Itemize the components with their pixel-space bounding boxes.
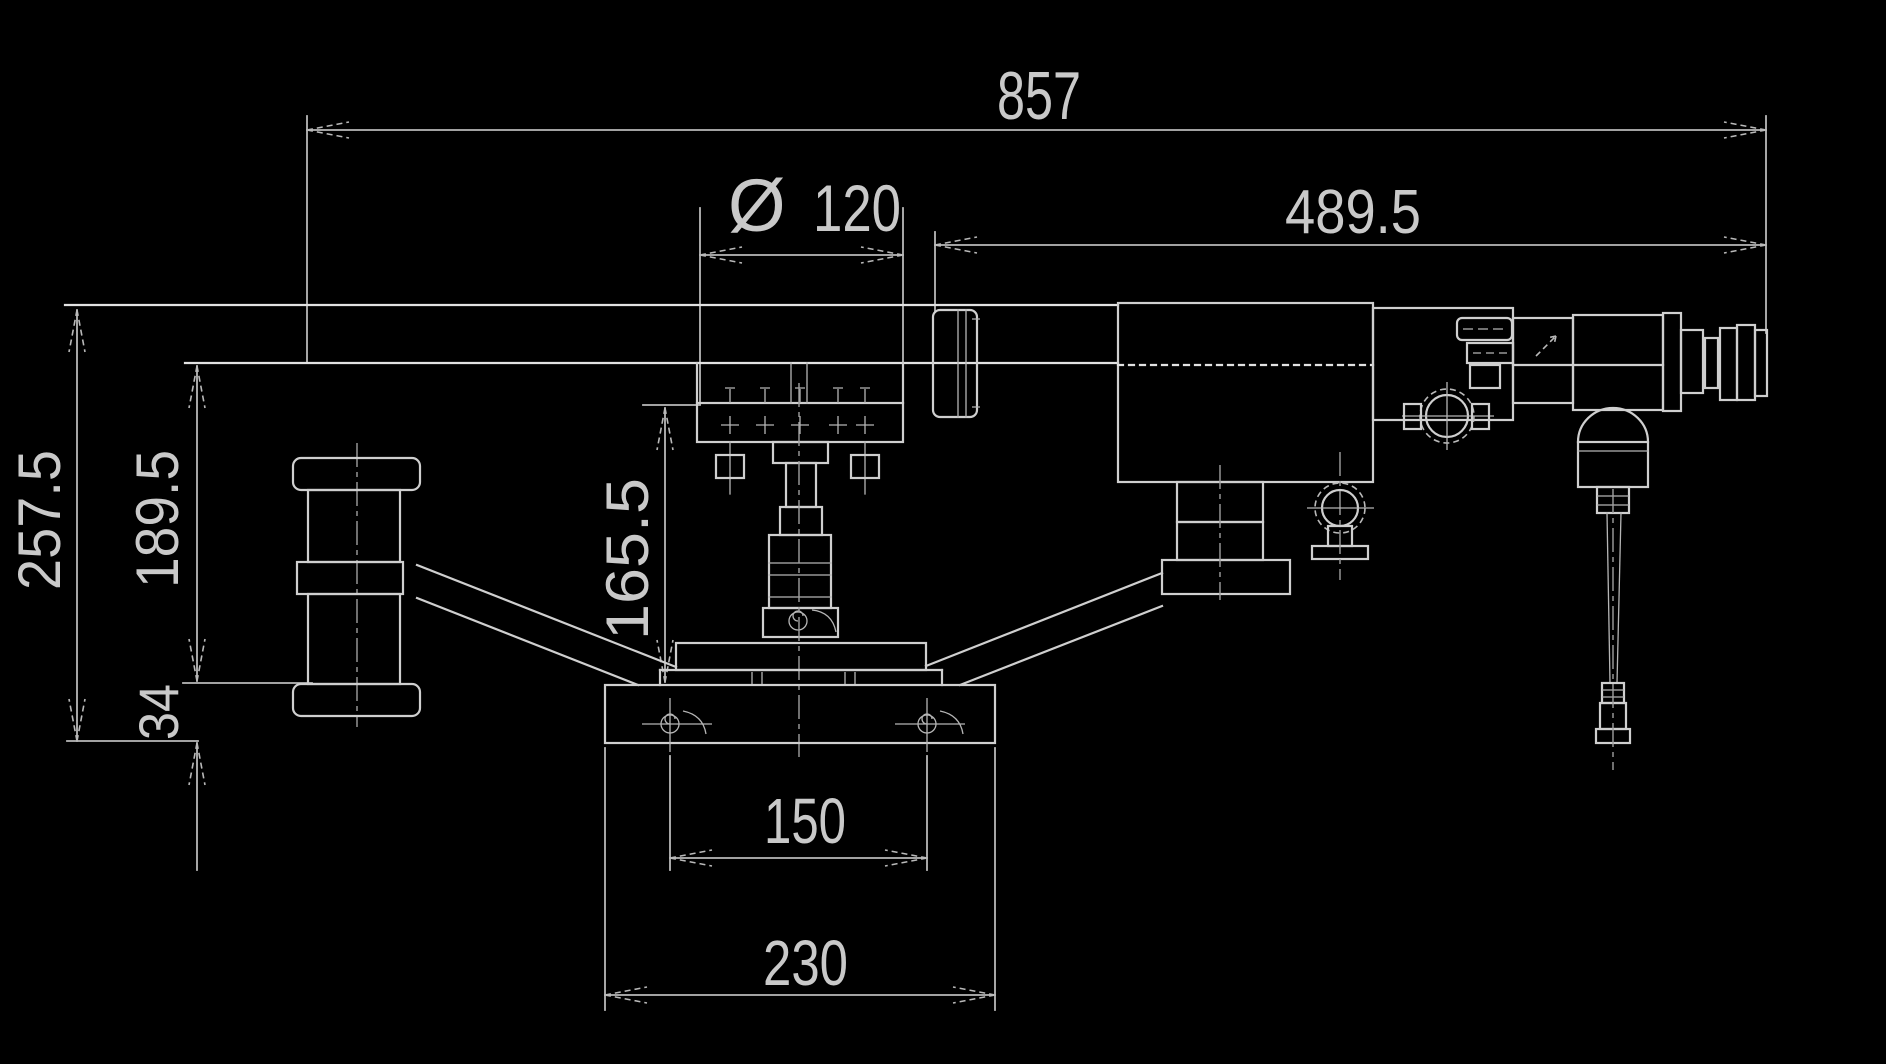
dimension-150-anchor-spacing: 150 [670,756,927,870]
foot-plate [660,643,942,685]
dim-rail-height-label: 189.5 [124,450,191,588]
leader-arrow [1536,336,1556,356]
spindle-stack [763,442,838,637]
water-elbow-and-hose [1578,408,1648,770]
dim-total-length-label: 857 [997,58,1081,134]
dimension-489-upper-length: 489.5 [935,178,1766,312]
dim-base-width-label: 230 [763,927,848,999]
technical-drawing-canvas: 857 489.5 Ø 120 257.5 189.5 165 [0,0,1886,1064]
dim-base-height-label: 34 [127,684,190,740]
guide-rail [65,305,1118,363]
drill-rig-side-view-drawing: 857 489.5 Ø 120 257.5 189.5 165 [0,0,1886,1064]
support-column-left [293,443,420,727]
dim-total-height-label: 257.5 [6,450,73,590]
dimension-34-base-height: 34 [127,684,205,870]
valve-handwheel [1402,382,1494,450]
hose-hook [812,610,836,632]
hose [1607,513,1610,683]
dim-anchor-spacing-label: 150 [764,785,846,857]
dim-spindle-height-label: 165.5 [594,478,661,640]
motor-support-column [1162,465,1290,600]
clamp-knob [1307,452,1374,580]
column-flange [297,562,403,594]
motor-body [1118,303,1373,482]
drill-head-gearbox [697,363,903,757]
dim-upper-length-label: 489.5 [1285,178,1421,247]
dim-diameter-label: 120 [813,171,901,245]
end-plate [1663,313,1681,411]
output-coupling [1681,325,1767,400]
diameter-symbol: Ø [728,164,786,247]
dimension-189-rail-height: 189.5 [124,366,312,683]
base-plate [605,685,995,752]
